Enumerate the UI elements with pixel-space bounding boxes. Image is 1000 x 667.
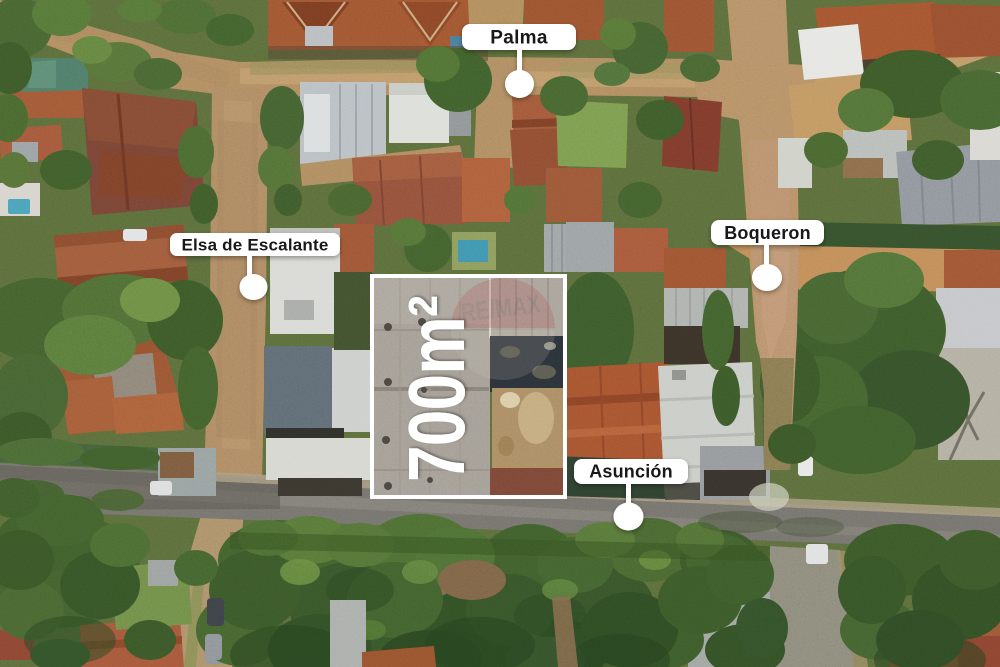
svg-text:Asunción: Asunción — [589, 462, 673, 482]
svg-text:Elsa de Escalante: Elsa de Escalante — [181, 236, 328, 255]
svg-text:Boqueron: Boqueron — [724, 223, 811, 243]
svg-text:Palma: Palma — [490, 28, 548, 49]
